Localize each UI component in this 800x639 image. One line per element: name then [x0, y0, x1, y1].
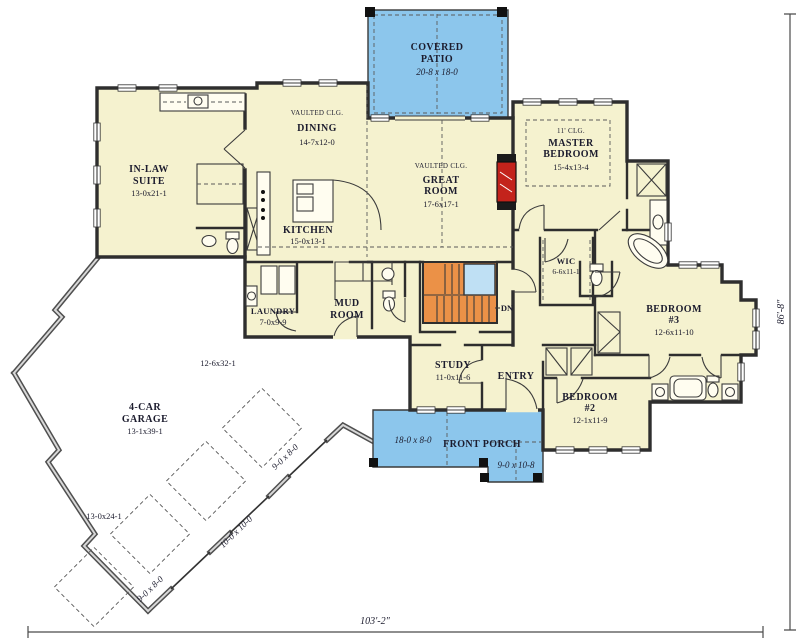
label-study: STUDY [435, 360, 471, 371]
label-mud-room: MUD [334, 298, 359, 309]
svg-text:12-6x11-10: 12-6x11-10 [654, 327, 693, 337]
garage-doors [171, 440, 327, 589]
label-dining: DINING [297, 123, 337, 134]
svg-text:11-0x11-6: 11-0x11-6 [436, 372, 471, 382]
garage-dim-interior: 12-6x32-1 [200, 358, 235, 368]
label-in-law-suite: IN-LAW [129, 164, 169, 175]
fireplace [497, 154, 516, 210]
porch-dim-left: 18-0 x 8-0 [395, 435, 432, 445]
label-kitchen: KITCHEN [283, 225, 333, 236]
label-bedroom-3: BEDROOM [646, 304, 702, 315]
label-front-porch: FRONT PORCH [443, 439, 521, 450]
master-toilet [590, 264, 603, 286]
label-covered-patio: COVERED [411, 42, 464, 53]
floor-plan-page: DN [0, 0, 800, 639]
svg-text:13-1x39-1: 13-1x39-1 [127, 426, 162, 436]
label-dining-clg: VAULTED CLG. [291, 109, 344, 117]
svg-text:15-4x13-4: 15-4x13-4 [553, 162, 589, 172]
parking-stalls [54, 388, 301, 626]
svg-text:6-6x11-1: 6-6x11-1 [552, 267, 579, 276]
svg-text:13-0x21-1: 13-0x21-1 [131, 188, 166, 198]
label-master-clg: 11' CLG. [557, 127, 585, 135]
stairs-dn-label: DN [501, 303, 514, 313]
label-wic: WIC [557, 256, 576, 266]
label-bedroom-2: BEDROOM [562, 392, 618, 403]
label-entry: ENTRY [498, 371, 535, 382]
porch-dim-right: 9-0 x 10-8 [498, 460, 535, 470]
svg-text:BEDROOM: BEDROOM [543, 149, 599, 160]
svg-text:#3: #3 [669, 315, 680, 326]
label-great-room-clg: VAULTED CLG. [415, 162, 468, 170]
garage-door-label-1: 9-0 x 8-0 [270, 442, 301, 472]
svg-text:#2: #2 [585, 403, 596, 414]
svg-text:20-8 x 18-0: 20-8 x 18-0 [416, 67, 458, 77]
svg-text:7-0x9-9: 7-0x9-9 [260, 317, 287, 327]
svg-text:12-1x11-9: 12-1x11-9 [572, 415, 607, 425]
garage-dim-side: 13-0x24-1 [86, 511, 121, 521]
svg-text:17-6x17-1: 17-6x17-1 [423, 199, 458, 209]
label-garage: 4-CAR [129, 402, 161, 413]
label-master-bedroom: MASTER [548, 138, 594, 149]
overall-width: 103'-2" [360, 616, 390, 627]
svg-text:SUITE: SUITE [133, 176, 165, 187]
garage-door-label-2: 10-0 x 10-0 [218, 513, 255, 549]
bath2-tub [670, 376, 706, 400]
bath2-toilet [707, 376, 719, 397]
powder-sink [382, 268, 394, 280]
svg-text:14-7x12-0: 14-7x12-0 [299, 137, 334, 147]
kitchen-counter [257, 172, 270, 255]
svg-text:15-0x13-1: 15-0x13-1 [290, 236, 325, 246]
overall-depth: 86'-8" [776, 299, 787, 324]
label-great-room: GREAT [423, 175, 460, 186]
floor-plan-drawing: DN [0, 0, 800, 639]
inlaw-toilet [226, 232, 239, 254]
svg-text:PATIO: PATIO [421, 54, 453, 65]
svg-text:ROOM: ROOM [424, 186, 458, 197]
inlaw-bath-sink [202, 236, 216, 247]
svg-text:ROOM: ROOM [330, 310, 364, 321]
label-laundry: LAUNDRY [251, 306, 295, 316]
svg-text:GARAGE: GARAGE [122, 414, 168, 425]
